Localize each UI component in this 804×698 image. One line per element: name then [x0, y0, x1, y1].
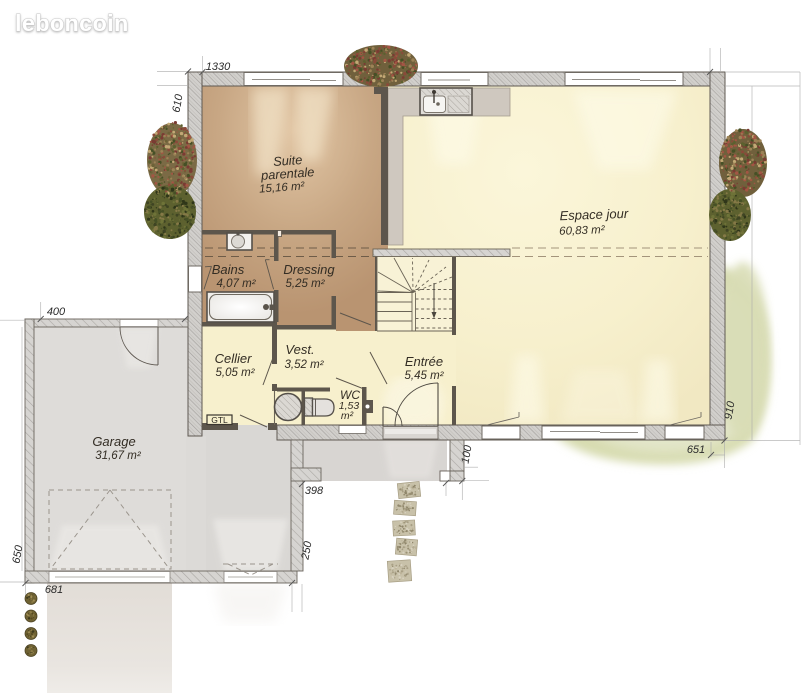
- svg-text:1330: 1330: [206, 61, 231, 73]
- svg-text:Entrée: Entrée: [405, 354, 443, 369]
- svg-text:400: 400: [47, 306, 66, 318]
- svg-text:leboncoin: leboncoin: [15, 10, 129, 36]
- svg-text:Garage: Garage: [92, 434, 135, 449]
- svg-text:398: 398: [305, 485, 324, 497]
- svg-text:Vest.: Vest.: [285, 342, 314, 357]
- svg-text:5,05 m²: 5,05 m²: [216, 367, 256, 379]
- svg-text:60,83 m²: 60,83 m²: [559, 224, 606, 238]
- svg-text:5,45 m²: 5,45 m²: [405, 370, 445, 382]
- svg-text:Cellier: Cellier: [215, 351, 253, 366]
- svg-text:Bains: Bains: [212, 262, 245, 277]
- svg-text:Espace jour: Espace jour: [559, 206, 629, 223]
- svg-text:651: 651: [687, 444, 705, 456]
- svg-text:4,07 m²: 4,07 m²: [217, 278, 257, 290]
- svg-text:3,52 m²: 3,52 m²: [285, 359, 325, 371]
- svg-text:681: 681: [45, 584, 63, 596]
- svg-text:Dressing: Dressing: [283, 262, 335, 277]
- svg-text:5,25 m²: 5,25 m²: [286, 278, 326, 290]
- svg-text:m²: m²: [341, 410, 354, 422]
- svg-text:GTL: GTL: [211, 415, 228, 425]
- svg-text:31,67 m²: 31,67 m²: [95, 450, 142, 462]
